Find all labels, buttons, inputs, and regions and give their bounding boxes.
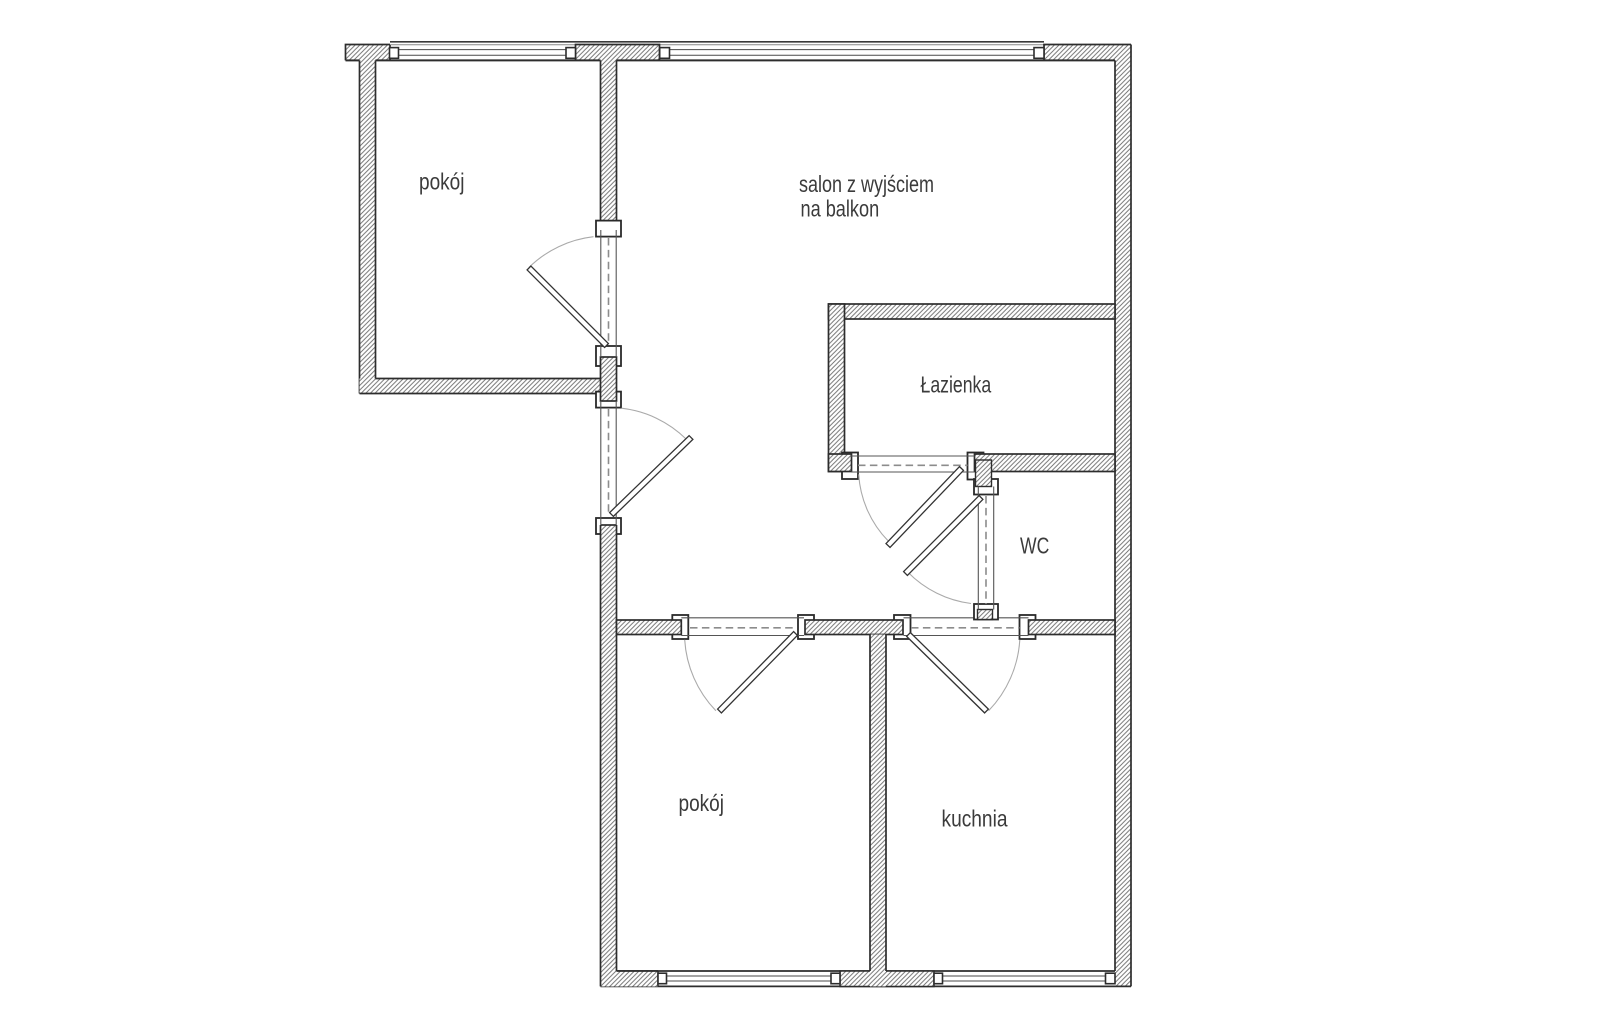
svg-text:kuchnia: kuchnia [942, 806, 1008, 832]
svg-text:pokój: pokój [419, 169, 464, 195]
svg-text:salon z wyjściem: salon z wyjściem [799, 172, 934, 198]
svg-text:pokój: pokój [679, 790, 724, 816]
svg-text:na balkon: na balkon [801, 196, 880, 222]
svg-text:Łazienka: Łazienka [921, 372, 992, 398]
svg-text:WC: WC [1020, 533, 1049, 559]
